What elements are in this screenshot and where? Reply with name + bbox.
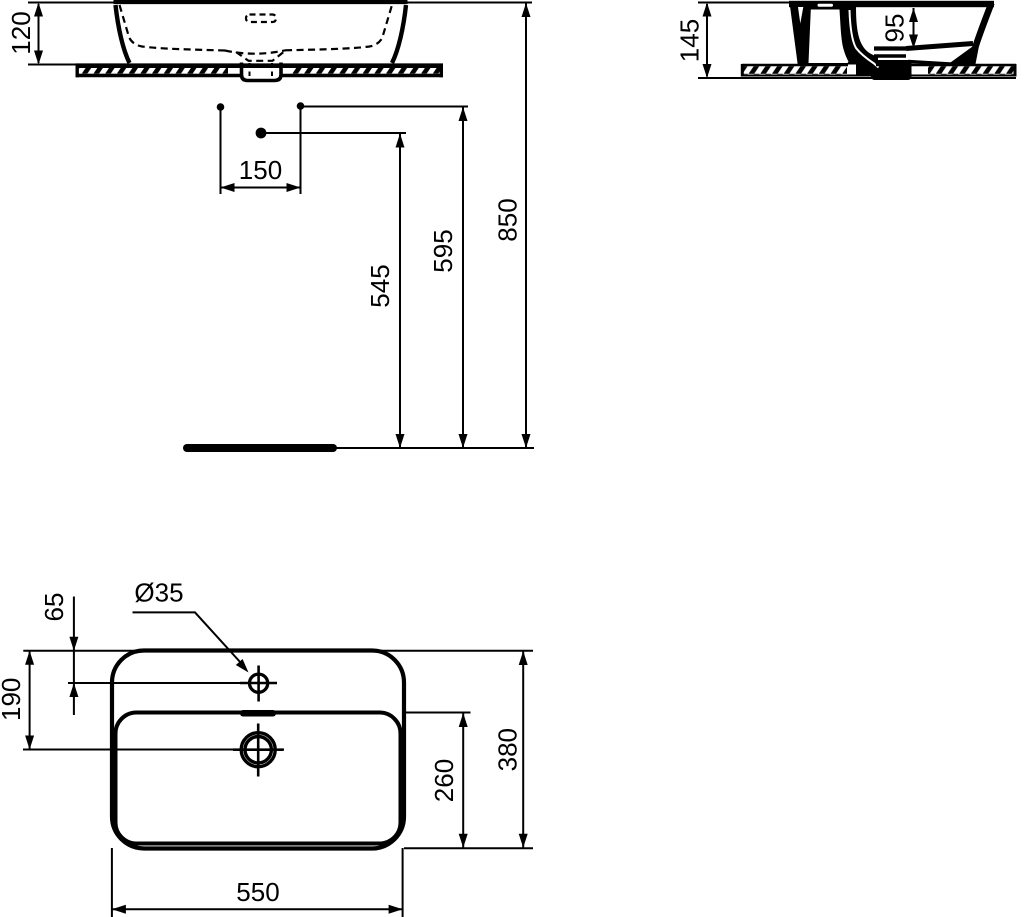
svg-text:65: 65 (39, 593, 69, 622)
svg-text:145: 145 (675, 19, 705, 62)
svg-text:Ø35: Ø35 (134, 578, 183, 608)
svg-text:120: 120 (6, 11, 36, 54)
svg-text:545: 545 (365, 264, 395, 307)
svg-text:550: 550 (236, 877, 279, 907)
svg-text:850: 850 (493, 198, 523, 241)
svg-text:260: 260 (429, 759, 459, 802)
svg-text:95: 95 (880, 14, 910, 43)
svg-text:190: 190 (0, 678, 26, 721)
svg-text:380: 380 (493, 728, 523, 771)
svg-text:150: 150 (239, 155, 282, 185)
svg-text:595: 595 (428, 229, 458, 272)
